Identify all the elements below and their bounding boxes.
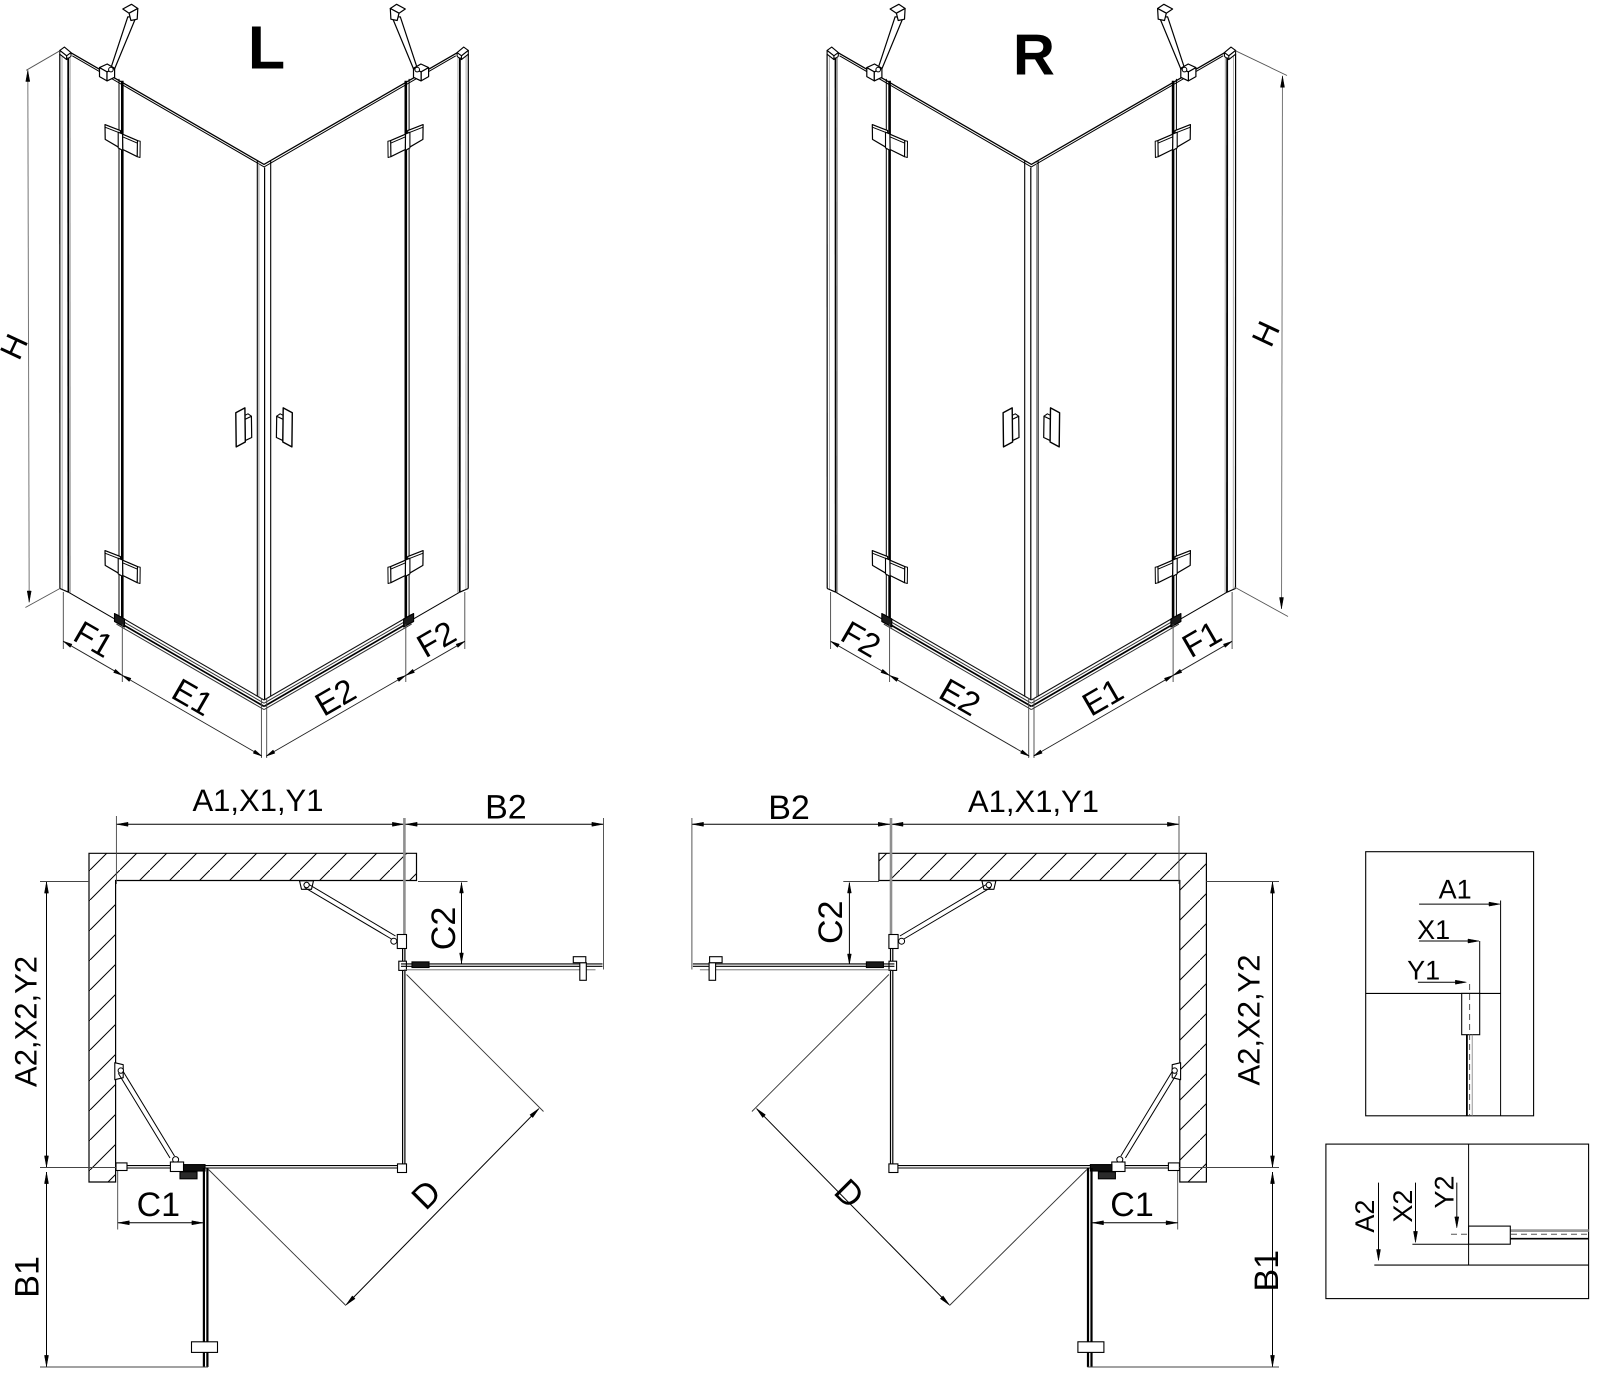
svg-text:A1,X1,Y1: A1,X1,Y1 (968, 784, 1099, 819)
svg-text:L: L (248, 14, 285, 82)
svg-text:A2: A2 (1350, 1200, 1380, 1233)
svg-text:X1: X1 (1417, 915, 1450, 945)
svg-text:A1,X1,Y1: A1,X1,Y1 (193, 783, 324, 818)
svg-text:B1: B1 (1248, 1250, 1286, 1292)
svg-text:X2: X2 (1388, 1190, 1418, 1223)
svg-text:B1: B1 (9, 1256, 47, 1298)
svg-text:C1: C1 (1110, 1186, 1153, 1224)
svg-text:Y1: Y1 (1407, 956, 1440, 986)
svg-text:B2: B2 (768, 789, 810, 827)
svg-text:Y2: Y2 (1430, 1175, 1460, 1208)
svg-text:R: R (1013, 23, 1055, 88)
svg-text:C2: C2 (812, 901, 850, 944)
svg-text:B2: B2 (485, 789, 527, 827)
svg-text:A1: A1 (1439, 874, 1472, 904)
svg-text:A2,X2,Y2: A2,X2,Y2 (9, 956, 44, 1087)
svg-text:C2: C2 (425, 907, 463, 950)
svg-text:A2,X2,Y2: A2,X2,Y2 (1232, 955, 1267, 1086)
svg-text:C1: C1 (137, 1186, 180, 1224)
